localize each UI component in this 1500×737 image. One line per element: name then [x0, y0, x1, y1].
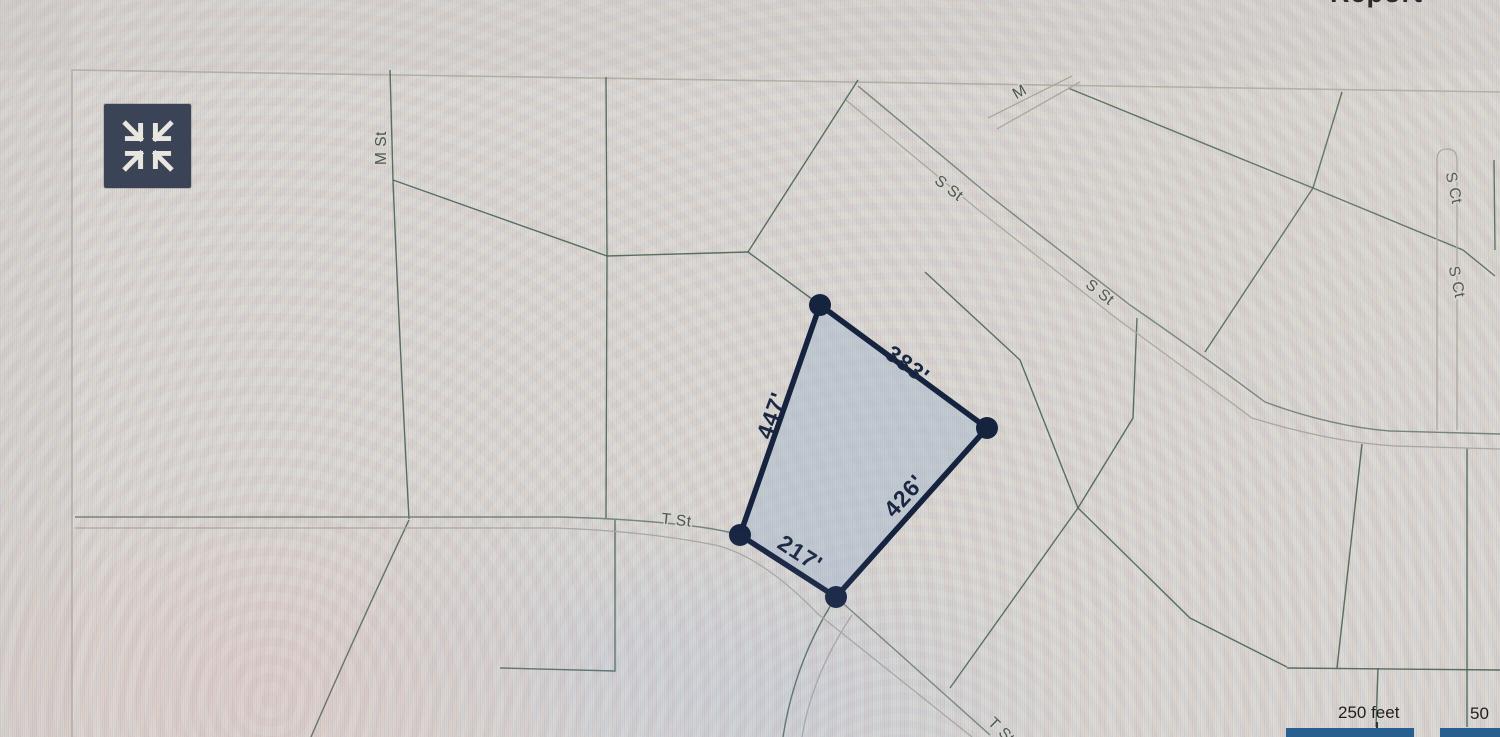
parcel-line — [1078, 318, 1137, 508]
selected-parcel[interactable]: 383' 447' 426' 217' — [729, 294, 998, 608]
road-fork-edge — [802, 615, 852, 737]
scale-bar-segment — [1440, 728, 1500, 737]
parcel-line — [1494, 160, 1495, 250]
parcel-line — [393, 180, 607, 256]
scale-bar-label: 250 feet — [1338, 703, 1399, 723]
street-label: T St — [661, 510, 693, 530]
parcel-line — [1205, 188, 1313, 352]
parcel-line — [950, 508, 1078, 688]
collapse-arrows-icon — [119, 118, 177, 174]
parcel-line — [606, 256, 607, 518]
parcel-vertex-handle[interactable] — [976, 417, 998, 439]
parcel-line — [607, 252, 748, 256]
parcel-vertex-handle[interactable] — [729, 524, 751, 546]
parcel-line — [311, 520, 409, 737]
parcel-line — [500, 520, 615, 671]
parcel-line — [393, 180, 409, 519]
collapse-button[interactable] — [104, 104, 191, 188]
parcel-line — [1078, 508, 1287, 667]
map-application-window: Report — [0, 0, 1500, 737]
parcel-line — [390, 70, 393, 180]
parcel-line — [1313, 188, 1495, 276]
parcel-line — [748, 80, 858, 252]
parcel-line — [1313, 92, 1342, 188]
scale-bar-label-partial: 50 — [1470, 704, 1489, 724]
street-label: S St — [931, 172, 966, 205]
parcel-line — [1287, 668, 1500, 670]
street-label: S Ct — [1442, 171, 1465, 206]
parcel-line — [1068, 88, 1313, 188]
street-label: S Ct — [1445, 265, 1468, 300]
m-street-road-edge — [988, 76, 1072, 118]
street-label: M St — [373, 131, 390, 165]
scale-bar-segment — [1286, 728, 1414, 737]
parcel-vertex-handle[interactable] — [825, 586, 847, 608]
parcel-line — [748, 252, 820, 305]
parcel-line — [1337, 444, 1362, 668]
parcel-vertex-handle[interactable] — [809, 294, 831, 316]
street-label: S St — [1082, 276, 1117, 309]
parcel-line — [606, 77, 607, 256]
s-street-road-edge — [858, 86, 1500, 434]
parcel-map-canvas[interactable]: M St M S St S St S Ct S Ct T St T St 383… — [0, 0, 1500, 737]
parcel-line — [783, 597, 836, 737]
